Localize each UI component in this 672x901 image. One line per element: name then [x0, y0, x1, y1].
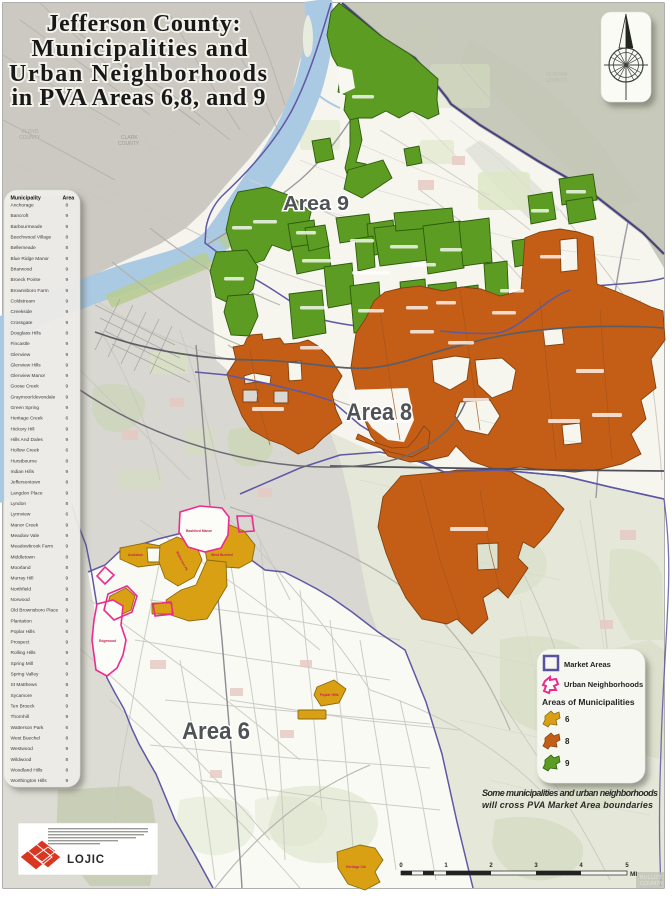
svg-text:Heritage Creek: Heritage Creek: [11, 416, 44, 422]
svg-text:Anchorage: Anchorage: [11, 203, 35, 209]
svg-text:Sycamore: Sycamore: [11, 693, 33, 699]
svg-text:9: 9: [66, 341, 69, 347]
svg-text:8: 8: [565, 737, 570, 746]
svg-text:in PVA Areas 6,8, and 9: in PVA Areas 6,8, and 9: [12, 85, 266, 111]
svg-text:Area 6: Area 6: [182, 718, 250, 745]
svg-text:9: 9: [66, 672, 69, 678]
svg-text:COUNTY: COUNTY: [118, 141, 140, 147]
svg-text:8: 8: [66, 693, 69, 699]
svg-text:9: 9: [66, 618, 69, 624]
svg-text:Graymoor/devondale: Graymoor/devondale: [11, 394, 56, 400]
svg-text:9: 9: [66, 533, 69, 539]
svg-text:Woodland Hills: Woodland Hills: [11, 768, 44, 774]
svg-text:Northfield: Northfield: [11, 586, 32, 592]
svg-text:9: 9: [66, 437, 69, 443]
svg-text:9: 9: [66, 640, 69, 646]
svg-text:Barbourmeade: Barbourmeade: [11, 224, 43, 230]
svg-text:Brownsboro Farm: Brownsboro Farm: [11, 288, 49, 294]
svg-text:COUNTY: COUNTY: [19, 135, 41, 141]
svg-text:9: 9: [66, 309, 69, 315]
svg-text:Hollow Creek: Hollow Creek: [11, 448, 40, 454]
svg-text:Meadow Vale: Meadow Vale: [11, 533, 40, 539]
svg-text:Bashford Manor: Bashford Manor: [186, 529, 213, 533]
svg-text:West Buechel: West Buechel: [11, 736, 41, 742]
svg-text:9: 9: [66, 778, 69, 784]
svg-text:West Buechel: West Buechel: [211, 553, 233, 557]
svg-text:Plantation: Plantation: [11, 618, 33, 624]
svg-text:9: 9: [66, 650, 69, 656]
svg-text:9: 9: [66, 522, 69, 528]
svg-text:9: 9: [66, 586, 69, 592]
svg-text:Jefferson County:: Jefferson County:: [47, 11, 241, 37]
svg-text:8: 8: [66, 768, 69, 774]
svg-text:Municipalities and: Municipalities and: [32, 36, 249, 62]
svg-text:Jeffersontown: Jeffersontown: [11, 480, 41, 486]
svg-text:St Matthews: St Matthews: [11, 682, 38, 688]
svg-text:Market Areas: Market Areas: [564, 660, 611, 669]
svg-text:Spring Valley: Spring Valley: [11, 672, 40, 678]
svg-text:9: 9: [66, 714, 69, 720]
svg-text:9: 9: [66, 576, 69, 582]
svg-text:Bellemeade: Bellemeade: [11, 245, 37, 251]
svg-text:8: 8: [66, 554, 69, 560]
svg-text:Meadowbrook Farm: Meadowbrook Farm: [11, 544, 54, 550]
svg-text:9: 9: [66, 608, 69, 614]
svg-text:Bancroft: Bancroft: [11, 213, 30, 219]
svg-text:Audubon: Audubon: [128, 553, 143, 557]
svg-text:8: 8: [66, 330, 69, 336]
svg-text:8: 8: [66, 501, 69, 507]
svg-text:Edgewood: Edgewood: [99, 639, 116, 643]
svg-text:9: 9: [66, 373, 69, 379]
svg-text:LOJIC: LOJIC: [67, 854, 105, 866]
svg-text:9: 9: [66, 490, 69, 496]
svg-text:Wildwood: Wildwood: [11, 757, 32, 763]
svg-text:Spring Mill: Spring Mill: [11, 661, 33, 667]
svg-text:9: 9: [66, 320, 69, 326]
svg-text:9: 9: [66, 213, 69, 219]
svg-text:6: 6: [66, 448, 69, 454]
svg-text:Worthington Hills: Worthington Hills: [11, 778, 48, 784]
svg-text:COUNTY: COUNTY: [546, 78, 568, 84]
svg-text:Area 9: Area 9: [283, 193, 349, 215]
svg-text:8: 8: [66, 565, 69, 571]
svg-text:8: 8: [66, 256, 69, 262]
svg-text:Briarwood: Briarwood: [11, 266, 33, 272]
svg-text:9: 9: [66, 384, 69, 390]
svg-text:Blue Ridge Manor: Blue Ridge Manor: [11, 256, 50, 262]
svg-text:6: 6: [565, 715, 570, 724]
svg-text:Green Spring: Green Spring: [11, 405, 40, 411]
svg-text:8: 8: [66, 203, 69, 209]
svg-text:Poplar Hills: Poplar Hills: [11, 629, 36, 635]
svg-text:Goose Creek: Goose Creek: [11, 384, 40, 390]
svg-text:8: 8: [66, 235, 69, 241]
svg-text:Douglass Hills: Douglass Hills: [11, 330, 42, 336]
svg-text:Hills And Dales: Hills And Dales: [11, 437, 44, 443]
svg-text:9: 9: [66, 544, 69, 550]
svg-text:Lynnview: Lynnview: [11, 512, 31, 518]
svg-text:Norwood: Norwood: [11, 597, 31, 603]
svg-text:Moorland: Moorland: [11, 565, 31, 571]
svg-text:6: 6: [66, 512, 69, 518]
svg-text:8: 8: [66, 597, 69, 603]
svg-text:8: 8: [66, 480, 69, 486]
svg-text:Poplar Hills: Poplar Hills: [320, 693, 339, 697]
svg-text:Creekside: Creekside: [11, 309, 33, 315]
svg-text:9: 9: [66, 224, 69, 230]
svg-text:6: 6: [66, 725, 69, 731]
svg-text:9: 9: [66, 362, 69, 368]
svg-text:Fincastle: Fincastle: [11, 341, 31, 347]
svg-text:Murray Hill: Murray Hill: [11, 576, 34, 582]
svg-text:Glenview Hills: Glenview Hills: [11, 362, 42, 368]
svg-text:Glenview: Glenview: [11, 352, 31, 358]
svg-text:Indian Hills: Indian Hills: [11, 469, 35, 475]
svg-text:9: 9: [66, 352, 69, 358]
svg-text:Area: Area: [63, 196, 75, 202]
svg-text:9: 9: [66, 277, 69, 283]
svg-text:9: 9: [66, 288, 69, 294]
svg-text:Rolling Hills: Rolling Hills: [11, 650, 37, 656]
svg-text:Area 8: Area 8: [346, 399, 412, 426]
svg-text:Old Brownsboro Place: Old Brownsboro Place: [11, 608, 59, 614]
svg-text:9: 9: [66, 266, 69, 272]
svg-text:9: 9: [66, 746, 69, 752]
svg-text:Lyndon: Lyndon: [11, 501, 27, 507]
svg-text:6: 6: [66, 661, 69, 667]
svg-text:Heritage Crk: Heritage Crk: [346, 865, 366, 869]
svg-text:Crossgate: Crossgate: [11, 320, 33, 326]
svg-text:Some municipalities and urban: Some municipalities and urban neighborho…: [482, 788, 658, 798]
svg-text:9: 9: [66, 394, 69, 400]
svg-text:9: 9: [66, 426, 69, 432]
svg-text:COUNTY: COUNTY: [640, 881, 664, 887]
svg-text:8: 8: [66, 757, 69, 763]
svg-text:8: 8: [66, 736, 69, 742]
svg-text:Municipality: Municipality: [11, 196, 41, 202]
svg-text:Hickory Hill: Hickory Hill: [11, 426, 35, 432]
svg-text:8: 8: [66, 245, 69, 251]
svg-text:9: 9: [66, 405, 69, 411]
svg-text:Coldstream: Coldstream: [11, 298, 36, 304]
svg-text:Manor Creek: Manor Creek: [11, 522, 39, 528]
svg-text:will cross PVA Market Area bou: will cross PVA Market Area boundaries: [482, 800, 653, 810]
svg-text:Langdon Place: Langdon Place: [11, 490, 43, 496]
svg-text:Urban Neighborhoods: Urban Neighborhoods: [9, 61, 267, 87]
svg-text:Ten Broeck: Ten Broeck: [11, 704, 36, 710]
svg-text:8: 8: [66, 458, 69, 464]
svg-text:Urban Neighborhoods: Urban Neighborhoods: [564, 680, 643, 689]
svg-text:8: 8: [66, 682, 69, 688]
svg-text:9: 9: [66, 469, 69, 475]
svg-text:Middletown: Middletown: [11, 554, 36, 560]
svg-text:Broeck Pointe: Broeck Pointe: [11, 277, 41, 283]
svg-text:Thornhill: Thornhill: [11, 714, 29, 720]
svg-text:Glenview Manor: Glenview Manor: [11, 373, 46, 379]
svg-text:9: 9: [565, 759, 570, 768]
svg-text:Prospect: Prospect: [11, 640, 31, 646]
svg-text:Watterson Park: Watterson Park: [11, 725, 44, 731]
svg-text:MI: MI: [630, 871, 637, 878]
svg-text:Westwood: Westwood: [11, 746, 34, 752]
svg-text:Hurstbourne: Hurstbourne: [11, 458, 38, 464]
svg-text:9: 9: [66, 298, 69, 304]
svg-text:6: 6: [66, 416, 69, 422]
svg-text:9: 9: [66, 704, 69, 710]
svg-text:6: 6: [66, 629, 69, 635]
svg-text:Areas of Municipalities: Areas of Municipalities: [542, 697, 635, 707]
svg-text:Beechwood Village: Beechwood Village: [11, 235, 52, 241]
